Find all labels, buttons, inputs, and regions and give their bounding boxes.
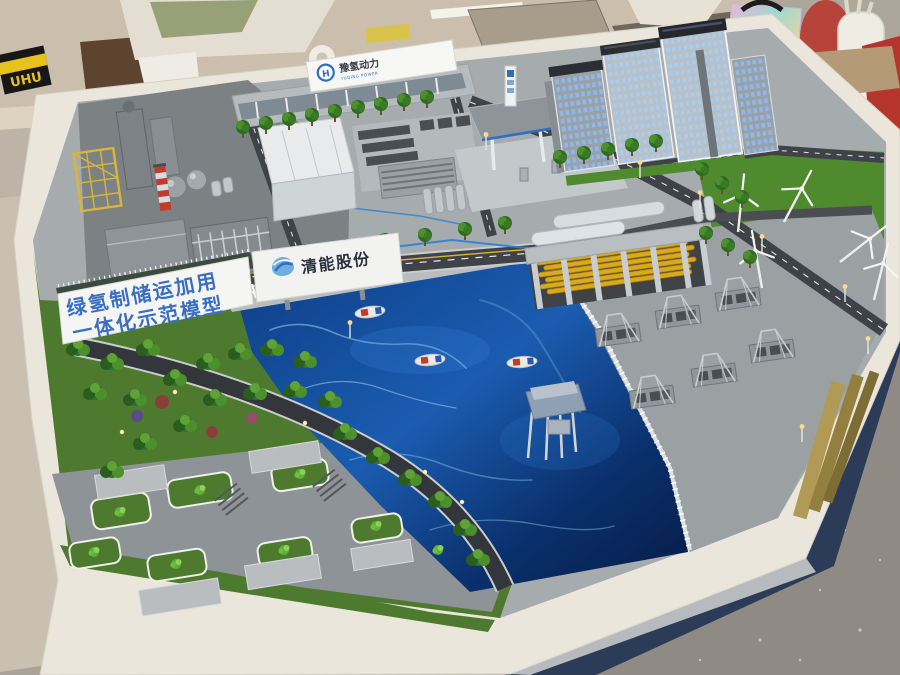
price-pylon: [505, 66, 516, 106]
purple-bush: [131, 410, 143, 422]
garden-light: [173, 390, 177, 394]
scene-canvas: UHU: [0, 0, 900, 675]
garden-light: [303, 421, 307, 425]
garden-light: [120, 430, 124, 434]
scale-model-table: H 豫氢动力 YUQING POWER: [14, 13, 900, 675]
garden-light: [423, 470, 427, 474]
entrance-logo: H: [317, 64, 335, 82]
workshop-photo: UHU: [0, 0, 900, 675]
red-bush: [206, 426, 218, 438]
dispenser: [520, 168, 528, 181]
red-bush: [155, 395, 169, 409]
pink-bush: [247, 413, 258, 424]
entrance-logo-letter: H: [322, 69, 331, 80]
platform-house: [548, 420, 570, 434]
garden-light: [460, 500, 464, 504]
